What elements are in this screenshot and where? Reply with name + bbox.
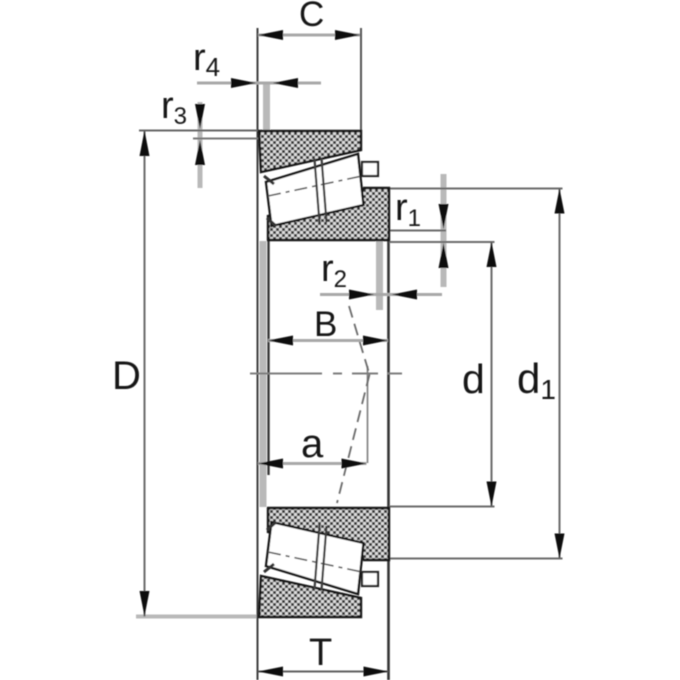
svg-text:C: C	[299, 0, 324, 34]
svg-text:d: d	[462, 356, 485, 402]
svg-text:D: D	[112, 354, 141, 398]
svg-text:T: T	[309, 632, 332, 674]
svg-text:a: a	[301, 422, 324, 466]
svg-text:B: B	[314, 305, 337, 344]
